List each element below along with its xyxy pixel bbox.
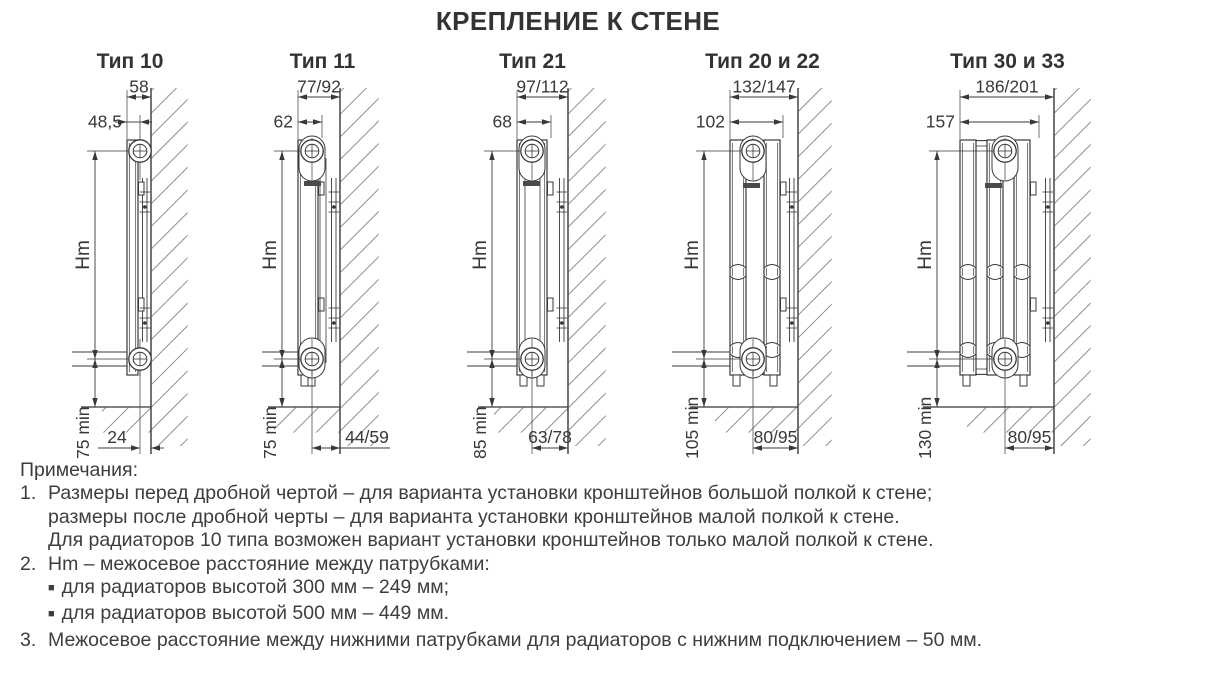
dim-axis-to-wall: 80/95 — [754, 427, 798, 447]
dim-front-to-axis: 68 — [493, 112, 512, 132]
note-line: Hm – межосевое расстояние между патрубка… — [48, 553, 1210, 576]
radiator-drawing-tip-21: 97/11268Hm85 min63/78 — [455, 80, 610, 460]
dim-axis-spacing: Hm — [682, 240, 703, 270]
figure-heading-tip-10: Тип 10 — [60, 50, 200, 74]
dim-total-depth: 132/147 — [732, 80, 795, 97]
figure-heading-tip-11: Тип 11 — [250, 50, 395, 74]
mounting-diagram-page: КРЕПЛЕНИЕ К СТЕНЕ Тип 10 Тип 11 Тип 21 Т… — [0, 0, 1220, 680]
dim-floor-clearance: 85 min — [470, 406, 490, 459]
dim-front-to-axis: 62 — [274, 112, 293, 132]
square-bullet-icon: ■ — [48, 603, 55, 626]
figure-tip-11: 77/9262Hm75 min44/59 — [250, 80, 395, 460]
radiator-drawing-tip-30-33: 186/201157Hm130 min80/95 — [895, 80, 1120, 460]
note-line: Размеры перед дробной чертой – для вариа… — [48, 482, 1210, 505]
dim-front-to-axis: 48,5 — [88, 112, 122, 132]
dim-total-depth: 77/92 — [297, 80, 341, 97]
dim-total-depth: 186/201 — [975, 80, 1038, 97]
dim-total-depth: 97/112 — [516, 80, 568, 97]
dim-floor-clearance: 75 min — [73, 406, 93, 459]
radiator-drawing-tip-10: 5848,5Hm75 min24 — [60, 80, 200, 460]
dim-front-to-axis: 102 — [696, 112, 725, 132]
radiator-drawing-tip-20-22: 132/147102Hm105 min80/95 — [660, 80, 865, 460]
note-item-3: 3. Межосевое расстояние между нижними па… — [20, 629, 1210, 652]
dim-total-depth: 58 — [129, 80, 148, 97]
notes-heading: Примечания: — [20, 459, 1210, 482]
note-line: Для радиаторов 10 типа возможен вариант … — [48, 529, 1210, 552]
figure-tip-21: 97/11268Hm85 min63/78 — [455, 80, 610, 460]
note-bullet-line: ■ для радиаторов высотой 300 мм – 249 мм… — [48, 576, 1210, 602]
brand-logo-mark — [743, 183, 760, 188]
square-bullet-icon: ■ — [48, 577, 55, 600]
page-title: КРЕПЛЕНИЕ К СТЕНЕ — [0, 6, 1156, 37]
figure-tip-10: 5848,5Hm75 min24 — [60, 80, 200, 460]
brand-logo-mark — [304, 181, 321, 186]
figure-heading-tip-20-22: Тип 20 и 22 — [660, 50, 865, 74]
dim-floor-clearance: 105 min — [682, 397, 702, 459]
dim-axis-spacing: Hm — [470, 240, 491, 270]
dim-floor-clearance: 130 min — [915, 397, 935, 459]
note-bullet-line: ■ для радиаторов высотой 500 мм – 449 мм… — [48, 602, 1210, 628]
notes-section: Примечания: 1. Размеры перед дробной чер… — [20, 459, 1210, 652]
radiator-drawing-tip-11: 77/9262Hm75 min44/59 — [250, 80, 395, 460]
brand-logo-mark — [985, 183, 1002, 188]
figure-heading-tip-30-33: Тип 30 и 33 — [895, 50, 1120, 74]
note-item-2: 2. Hm – межосевое расстояние между патру… — [20, 553, 1210, 629]
dim-axis-spacing: Hm — [260, 240, 281, 270]
brand-logo-mark — [523, 181, 540, 186]
dim-axis-spacing: Hm — [915, 240, 936, 270]
figure-tip-30-33: 186/201157Hm130 min80/95 — [895, 80, 1120, 460]
figure-heading-tip-21: Тип 21 — [455, 50, 610, 74]
note-line: размеры после дробной черты – для вариан… — [48, 506, 1210, 529]
note-line: Межосевое расстояние между нижними патру… — [48, 629, 1210, 652]
dim-axis-spacing: Hm — [73, 240, 94, 270]
figure-tip-20-22: 132/147102Hm105 min80/95 — [660, 80, 865, 460]
note-item-1: 1. Размеры перед дробной чертой – для ва… — [20, 482, 1210, 552]
dim-axis-to-wall: 44/59 — [345, 427, 389, 447]
dim-floor-clearance: 75 min — [260, 406, 280, 459]
dim-axis-to-wall: 80/95 — [1008, 427, 1052, 447]
dim-axis-to-wall: 63/78 — [528, 427, 572, 447]
dim-axis-to-wall: 24 — [107, 427, 127, 447]
dim-front-to-axis: 157 — [926, 112, 955, 132]
